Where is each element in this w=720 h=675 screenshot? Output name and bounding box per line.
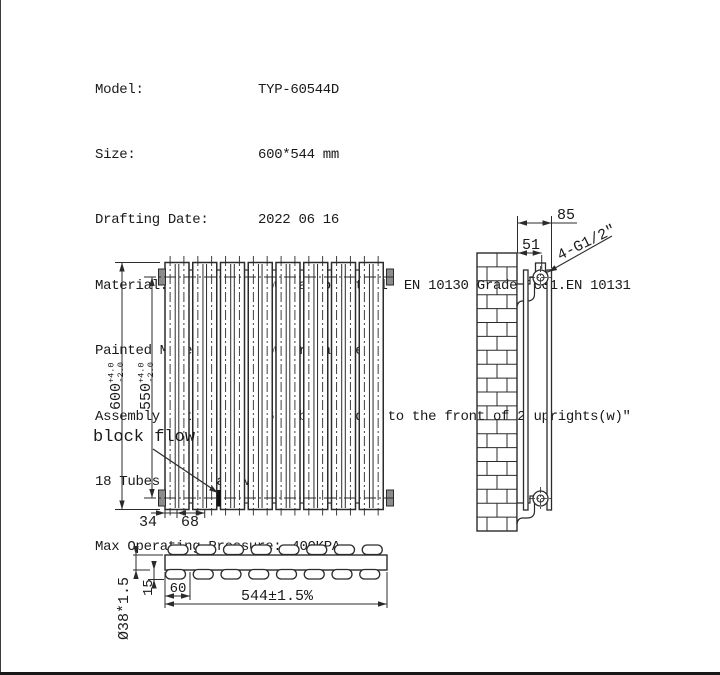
- dim-tube-label: Ø38*1.5: [116, 577, 133, 640]
- radiator-panels: [165, 256, 383, 516]
- svg-text:600+4.0-2.0: 600+4.0-2.0: [107, 362, 127, 410]
- sheet-left-edge: [0, 0, 1, 675]
- block-flow-label: block flow: [93, 428, 196, 447]
- technical-drawing: 600+4.0-2.0 550+4.0-2.0: [0, 0, 720, 675]
- brick-wall: [477, 253, 517, 531]
- tube-row-front: [166, 570, 380, 580]
- dim-544-label: 544±1.5%: [241, 588, 314, 605]
- tube-row-back: [168, 545, 382, 555]
- connection-label: 4-G1/2": [555, 222, 619, 265]
- dim-600-label: 600+4.0-2.0: [107, 362, 127, 410]
- svg-text:550+4.0-2.0: 550+4.0-2.0: [137, 362, 157, 410]
- dim-15-label: 15: [141, 579, 157, 596]
- side-view: 85 51 4-G1/2": [477, 207, 619, 531]
- dim-tube: [133, 546, 163, 579]
- dim-60-label: 60: [170, 581, 187, 597]
- dim-68-label: 68: [181, 514, 199, 531]
- dim-51-label: 51: [522, 237, 540, 254]
- radiator-profile: [524, 263, 552, 510]
- header-band: [165, 555, 387, 570]
- top-view: Ø38*1.5 15 60: [116, 545, 387, 640]
- svg-text:4-G1/2": 4-G1/2": [555, 222, 619, 265]
- svg-text:15: 15: [141, 579, 157, 596]
- drawing-sheet: Model: TYP-60544D Size: 600*544 mm Draft…: [0, 0, 720, 675]
- front-view: 600+4.0-2.0 550+4.0-2.0: [93, 256, 394, 531]
- dim-85-label: 85: [557, 207, 575, 224]
- dim-34-label: 34: [139, 514, 157, 531]
- svg-text:Ø38*1.5: Ø38*1.5: [116, 577, 133, 640]
- dim-550-label: 550+4.0-2.0: [137, 362, 157, 410]
